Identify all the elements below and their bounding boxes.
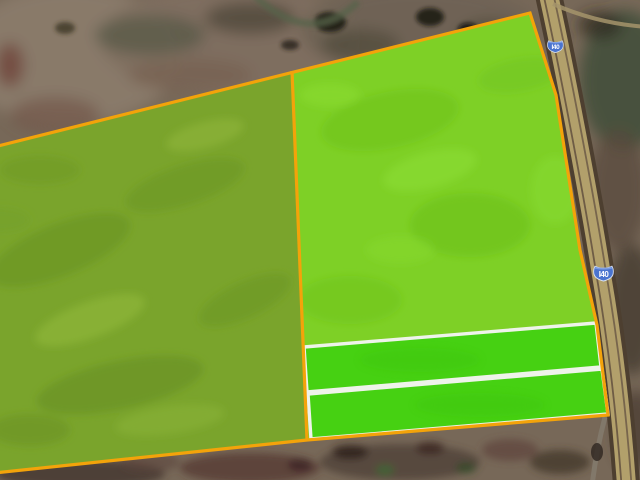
- strip-1-texture: [360, 348, 480, 372]
- satellite-map[interactable]: I40 I40: [0, 0, 640, 480]
- shield-label: I40: [599, 270, 610, 279]
- satellite-map-viewport[interactable]: I40 I40: [0, 0, 640, 480]
- strip-2-texture: [415, 393, 545, 417]
- track-shadow-blob: [591, 443, 603, 461]
- shield-label: I40: [552, 44, 561, 51]
